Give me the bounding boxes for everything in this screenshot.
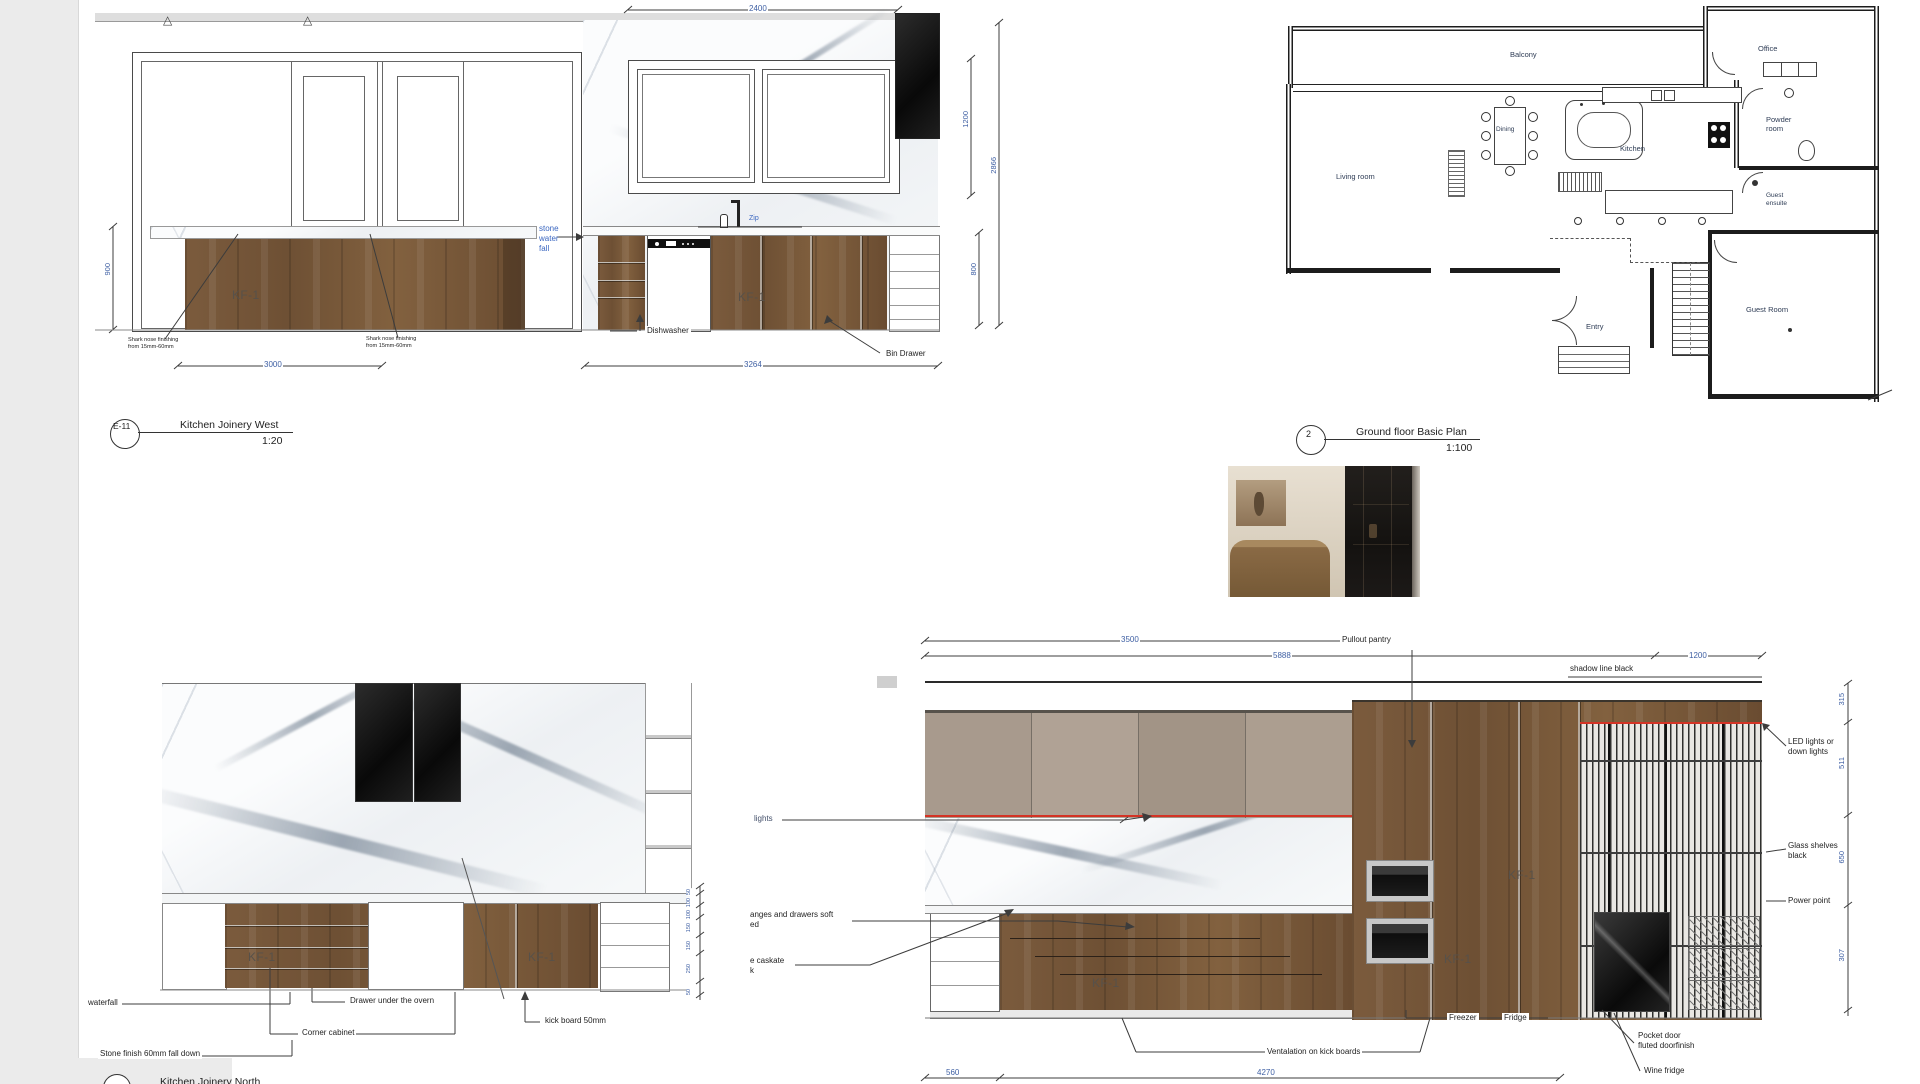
- plan-balcony-left-wall: [1288, 26, 1293, 88]
- bin-drawer-note: Bin Drawer: [884, 349, 928, 359]
- sharknose-note: Shark nose finishingfrom 15mm-60mm: [366, 336, 416, 351]
- base-finish-label: KF-1: [738, 290, 766, 304]
- upper-panel: [1032, 713, 1139, 818]
- vent-hatch: [1688, 980, 1760, 1010]
- chair-icon: [1481, 131, 1491, 141]
- north-chain-dim: 100: [687, 897, 693, 908]
- drawing-sheet: △ △ KF-1: [0, 0, 1920, 1084]
- door-arc-icon: [1714, 240, 1737, 263]
- room-label-living: Living room: [1336, 172, 1375, 181]
- chair-icon: [1528, 150, 1538, 160]
- big-pantry-finish-label: KF-1: [1444, 952, 1472, 966]
- soft-close-note: anges and drawers softed: [750, 910, 833, 930]
- plan-right-outer-wall: [1874, 6, 1879, 402]
- chair-icon: [1481, 150, 1491, 160]
- vent-hatch: [1688, 948, 1760, 978]
- plan-entry-wall: [1650, 268, 1654, 348]
- wine-fridge-note: Wine fridge: [1642, 1066, 1686, 1076]
- pocket-door-note: Pocket doorfluted doorfinish: [1638, 1031, 1694, 1051]
- big-grey-tab: [877, 676, 897, 688]
- vent-hatch: [1688, 916, 1760, 946]
- dim-island-width: 3000: [263, 361, 283, 369]
- plan-dashed-line: [1630, 238, 1632, 263]
- big-bench-cabinets: [1000, 912, 1352, 1010]
- chair-icon: [1505, 166, 1515, 176]
- dishwasher-note: Dishwasher: [645, 326, 691, 336]
- room-label-guest-ensuite: Guestensuite: [1766, 192, 1787, 208]
- north-finish-label: KF-1: [248, 950, 276, 964]
- plan-office-left-wall: [1703, 6, 1708, 58]
- zip-tap-note: Zip: [749, 215, 759, 224]
- big-chain-dim: 511: [1838, 756, 1846, 770]
- room-label-guest-room: Guest Room: [1746, 305, 1788, 314]
- island-end-panel: [503, 237, 525, 330]
- power-point-note: Power point: [1788, 896, 1830, 906]
- dim-5888: 5888: [1272, 652, 1292, 660]
- plan-scale: 1:100: [1446, 442, 1472, 454]
- photo-light-edge: [1412, 466, 1420, 597]
- dim-4270: 4270: [1256, 1069, 1276, 1077]
- island-body: [185, 237, 525, 330]
- island-dot: [1580, 103, 1583, 106]
- west-marker-label: E-11: [113, 421, 130, 432]
- big-splashback: [925, 817, 1352, 905]
- big-white-drawers: [930, 912, 1000, 1012]
- oven-niche: [1366, 918, 1434, 964]
- kitchen-render-photo: [1228, 466, 1420, 597]
- big-upper-cabinets: [925, 710, 1352, 818]
- dishwasher-front: [647, 235, 711, 332]
- west-scale: 1:20: [262, 435, 282, 447]
- upper-panel: [1139, 713, 1246, 818]
- plan-kitchen-bench: [1602, 87, 1742, 103]
- glass-door: [762, 69, 890, 183]
- tap-spout-icon: [731, 200, 739, 203]
- shower-icon: [1752, 180, 1758, 186]
- big-chain-dim: 650: [1838, 850, 1846, 865]
- stool-icon: [1616, 217, 1624, 225]
- plan-dining-table: [1494, 107, 1526, 165]
- plan-marker-label: 2: [1306, 429, 1311, 440]
- plan-title: Ground floor Basic Plan: [1356, 426, 1467, 438]
- wine-fridge: [1594, 912, 1670, 1012]
- west-upper-cabinet: [628, 60, 900, 194]
- big-led-strip: [925, 815, 1352, 817]
- west-black-panel: [895, 13, 940, 139]
- room-dot: [1788, 328, 1792, 332]
- west-counter: [583, 226, 940, 236]
- photo-dark-cabinet: [1345, 466, 1420, 597]
- big-pantry-finish-label: KF-1: [1508, 868, 1536, 882]
- big-bench-finish-label: KF-1: [1092, 976, 1120, 990]
- stone-waterfall-note: stonewaterfall: [539, 224, 559, 254]
- big-top-shadow-line: [925, 681, 1762, 683]
- corner-cabinet-note: Corner cabinet: [300, 1028, 356, 1038]
- north-rangehood-panel: [355, 683, 413, 802]
- dim-island-height: 900: [104, 262, 112, 277]
- drawer-under-oven-note: Drawer under the overn: [348, 996, 436, 1006]
- north-chain-dim: 50: [687, 988, 693, 996]
- room-label-office: Office: [1758, 44, 1777, 53]
- pendant-hook-icon: △: [163, 13, 172, 27]
- pullout-pantry-note: Pullout pantry: [1340, 635, 1393, 645]
- chair-icon: [1505, 96, 1515, 106]
- north-chain-dim: 250: [687, 963, 693, 974]
- wardrobe-door-panel: [303, 76, 365, 221]
- photo-vase: [1254, 492, 1264, 516]
- glass-door: [637, 69, 755, 183]
- north-chain-dim: 150: [687, 922, 693, 933]
- plan-office-desk: [1763, 62, 1817, 77]
- dim-top-width: 2400: [748, 5, 768, 13]
- page-left-margin: [0, 0, 79, 1084]
- plan-window-bay: [1448, 150, 1465, 197]
- stool-icon: [1574, 217, 1582, 225]
- stool-icon: [1658, 217, 1666, 225]
- north-finish-label: KF-1: [528, 950, 556, 964]
- ventilation-note: Ventalation on kick boards: [1265, 1047, 1362, 1057]
- big-chain-dim: 315: [1838, 692, 1846, 707]
- glass-shelf: [1580, 760, 1762, 762]
- west-white-drawers: [889, 235, 940, 332]
- west-base-drawers: [598, 235, 645, 330]
- sharknose-note: Shark nose finishingfrom 15mm-60mm: [128, 337, 178, 352]
- shadow-line-note: shadow line black: [1568, 664, 1635, 674]
- dim-1200: 1200: [1688, 652, 1708, 660]
- chair-icon: [1528, 112, 1538, 122]
- dim-upper-height: 1200: [962, 110, 970, 129]
- door-arc-icon: [1552, 320, 1577, 345]
- plan-living-bottom-wall: [1286, 268, 1431, 273]
- plan-balcony-top-wall: [1288, 26, 1708, 31]
- door-arc-icon: [1742, 88, 1763, 109]
- room-label-balcony: Balcony: [1510, 50, 1537, 59]
- plan-dashed-line: [1630, 262, 1700, 264]
- island-dot: [1602, 102, 1605, 105]
- dim-bench-width: 3264: [743, 361, 763, 369]
- lights-note: lights: [752, 814, 775, 824]
- dim-total-height: 2866: [990, 156, 998, 175]
- north-chain-dim: 50: [687, 888, 693, 896]
- freezer-note: Freezer: [1447, 1013, 1479, 1023]
- plan-cooktop: [1708, 122, 1730, 148]
- glass-shelf: [1580, 852, 1762, 854]
- chair-icon: [1528, 131, 1538, 141]
- room-label-powder: Powderroom: [1766, 115, 1791, 134]
- north-white-drawers: [600, 902, 670, 992]
- north-open-shelves: [645, 683, 692, 893]
- basin-icon: [1784, 88, 1794, 98]
- upper-panel: [1246, 713, 1352, 818]
- north-left-panel: [162, 902, 227, 990]
- west-base-doors: [711, 235, 887, 330]
- dim-bench-height: 800: [970, 262, 978, 277]
- west-title-line: [138, 432, 293, 433]
- room-label-entry: Entry: [1586, 322, 1604, 331]
- plan-title-line: [1324, 439, 1480, 440]
- door-arc-icon: [1552, 296, 1577, 321]
- island-counter: [150, 226, 537, 239]
- dim-3500: 3500: [1120, 636, 1140, 644]
- north-rangehood-panel: [414, 683, 461, 802]
- north-title: Kitchen Joinery North: [160, 1076, 260, 1084]
- north-corner-void: [368, 902, 464, 990]
- north-chain-dim: 150: [687, 940, 693, 951]
- room-label-kitchen: Kitchen: [1620, 144, 1645, 153]
- glass-shelves-note: Glass shelvesblack: [1788, 841, 1838, 861]
- photo-island: [1230, 540, 1330, 597]
- fridge-note: Fridge: [1502, 1013, 1529, 1023]
- dim-560: 560: [945, 1069, 960, 1077]
- wardrobe-door-panel: [397, 76, 459, 221]
- plan-powder-bottom-wall: [1739, 166, 1879, 170]
- caskate-note: e caskatek: [750, 956, 784, 976]
- upper-panel: [925, 713, 1032, 818]
- plan-stairs: [1672, 262, 1710, 356]
- plan-left-outer-wall: [1286, 84, 1291, 274]
- west-title: Kitchen Joinery West: [180, 419, 278, 431]
- pendant-hook-icon: △: [303, 13, 312, 27]
- oven-niche: [1366, 860, 1434, 902]
- kick-board-note: kick board 50mm: [543, 1016, 608, 1026]
- soap-pump-icon: [720, 214, 728, 228]
- plan-vent-strip: [1558, 172, 1602, 192]
- plan-entry-porch: [1558, 346, 1630, 374]
- tap-icon: [737, 200, 740, 227]
- plan-bottom-outer-wall: [1708, 394, 1879, 399]
- plan-office-top-wall: [1703, 6, 1877, 11]
- plan-lower-bench: [1605, 190, 1733, 214]
- led-lights-note: LED lights ordown lights: [1788, 737, 1834, 757]
- big-counter: [925, 905, 1352, 914]
- north-chain-dim: 100: [687, 909, 693, 920]
- waterfall-note: waterfall: [86, 998, 120, 1008]
- plan-dashed-line: [1550, 238, 1630, 240]
- big-chain-dim: 307: [1838, 948, 1846, 963]
- plan-guest-top-wall: [1708, 230, 1879, 234]
- chair-icon: [1481, 112, 1491, 122]
- toilet-icon: [1798, 140, 1815, 161]
- door-arc-icon: [1712, 52, 1735, 75]
- plan-living-bottom-wall: [1450, 268, 1560, 273]
- stone-finish-note: Stone finish 60mm fall down: [98, 1049, 202, 1059]
- stool-icon: [1698, 217, 1706, 225]
- island-finish-label: KF-1: [232, 288, 260, 302]
- big-fluted-led: [1580, 722, 1762, 724]
- room-label-dining: Dining: [1496, 126, 1514, 134]
